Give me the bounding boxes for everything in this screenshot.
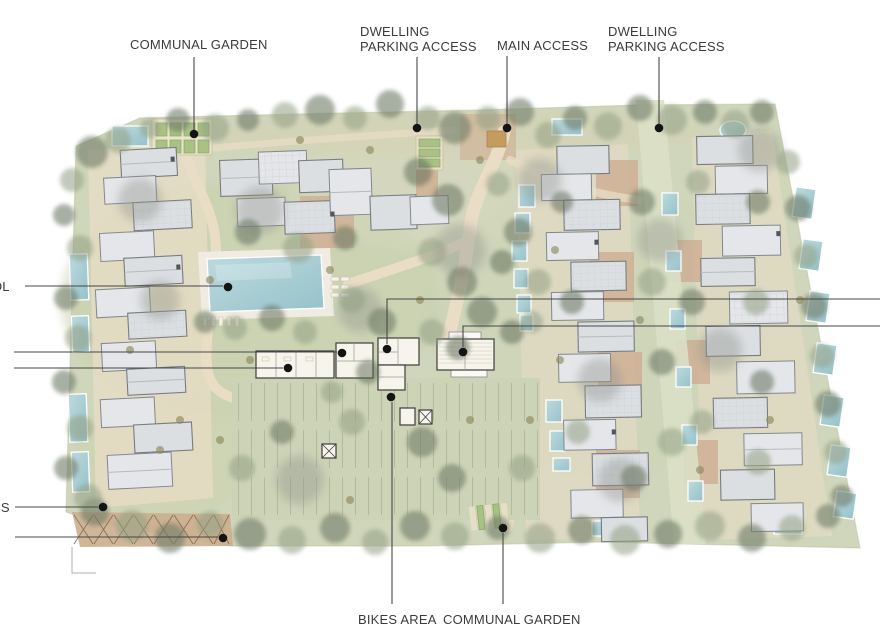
label-communal-garden-bottom: COMMUNAL GARDEN xyxy=(443,612,581,627)
label-bikes-area: BIKES AREA xyxy=(358,612,437,627)
main-access-square xyxy=(487,131,506,147)
label-line: PARKING ACCESS xyxy=(360,39,477,54)
label-line: PARKING ACCESS xyxy=(608,39,725,54)
label-dwelling-parking-access-east: DWELLING PARKING ACCESS xyxy=(608,24,725,54)
label-communal-garden-top: COMMUNAL GARDEN xyxy=(130,37,268,52)
label-line: DWELLING xyxy=(608,24,725,39)
site-plan-page: COMMUNAL GARDEN DWELLING PARKING ACCESS … xyxy=(0,0,880,640)
label-access-cutoff: SS xyxy=(0,500,10,515)
label-main-access: MAIN ACCESS xyxy=(497,38,588,53)
label-pool-cutoff: OL xyxy=(0,279,10,294)
site-plan-map xyxy=(0,0,880,640)
boundary-mark xyxy=(72,547,96,573)
label-dwelling-parking-access-west: DWELLING PARKING ACCESS xyxy=(360,24,477,54)
parking-area xyxy=(232,378,540,520)
label-line: DWELLING xyxy=(360,24,477,39)
